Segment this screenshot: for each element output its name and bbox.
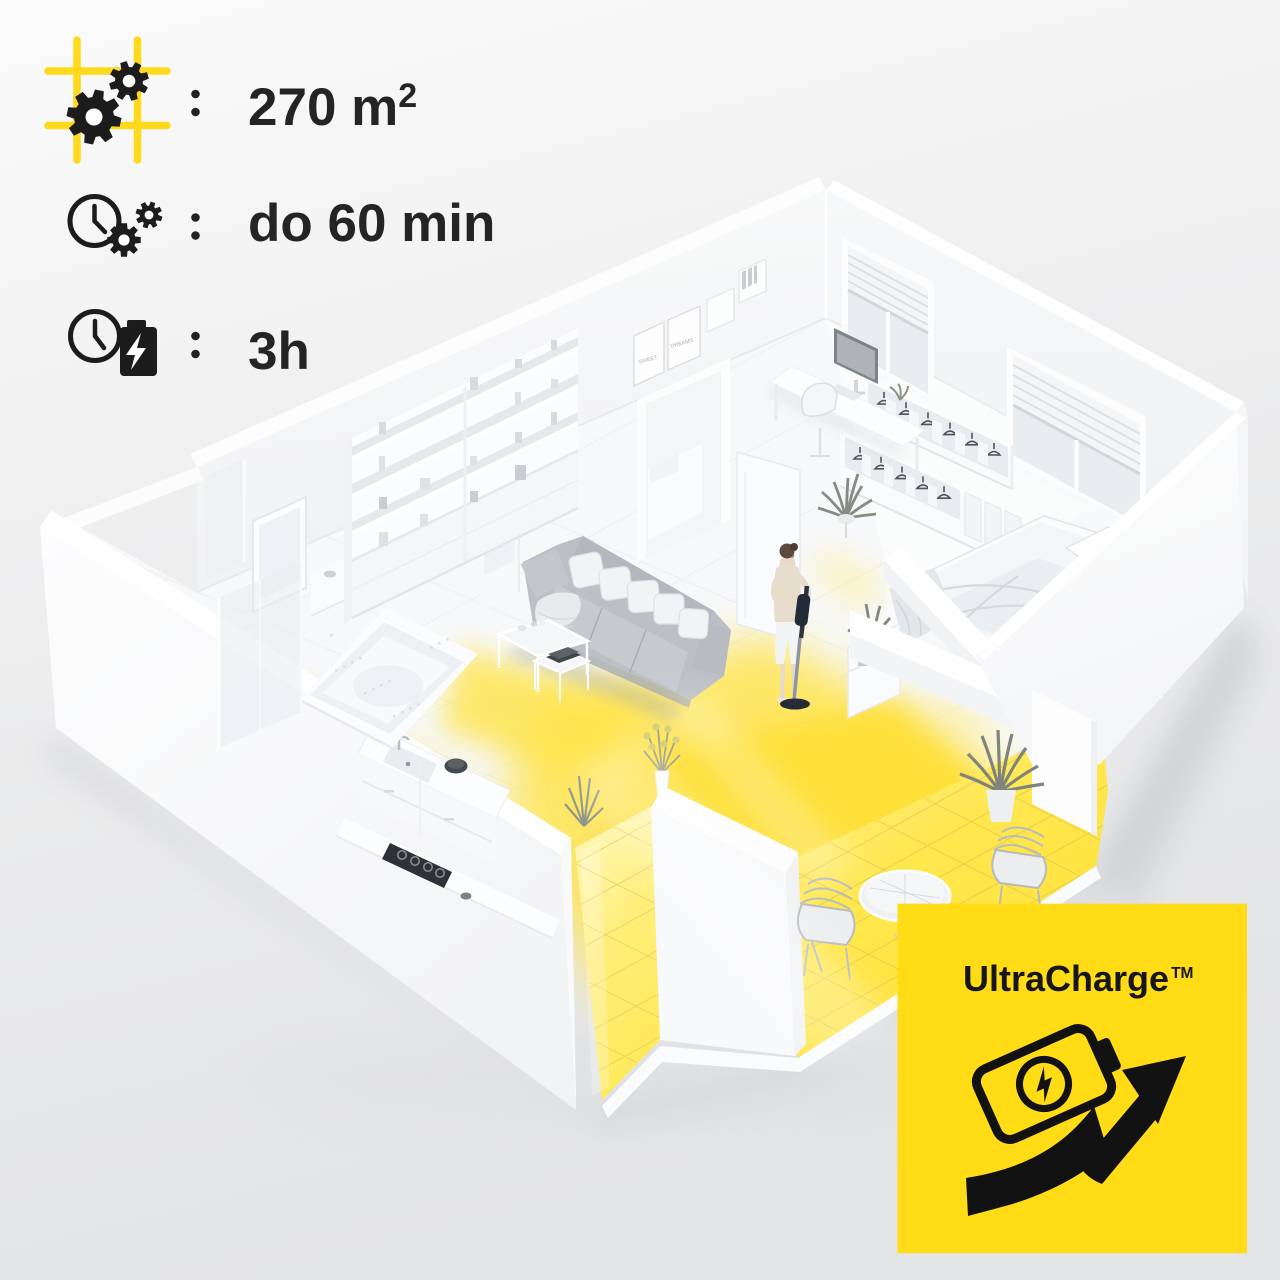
svg-text:270 m2: 270 m2 <box>248 77 417 137</box>
svg-text:3h: 3h <box>248 322 310 381</box>
svg-text:UltraChargeTM: UltraChargeTM <box>963 958 1193 999</box>
svg-text:do 60 min: do 60 min <box>248 194 495 253</box>
